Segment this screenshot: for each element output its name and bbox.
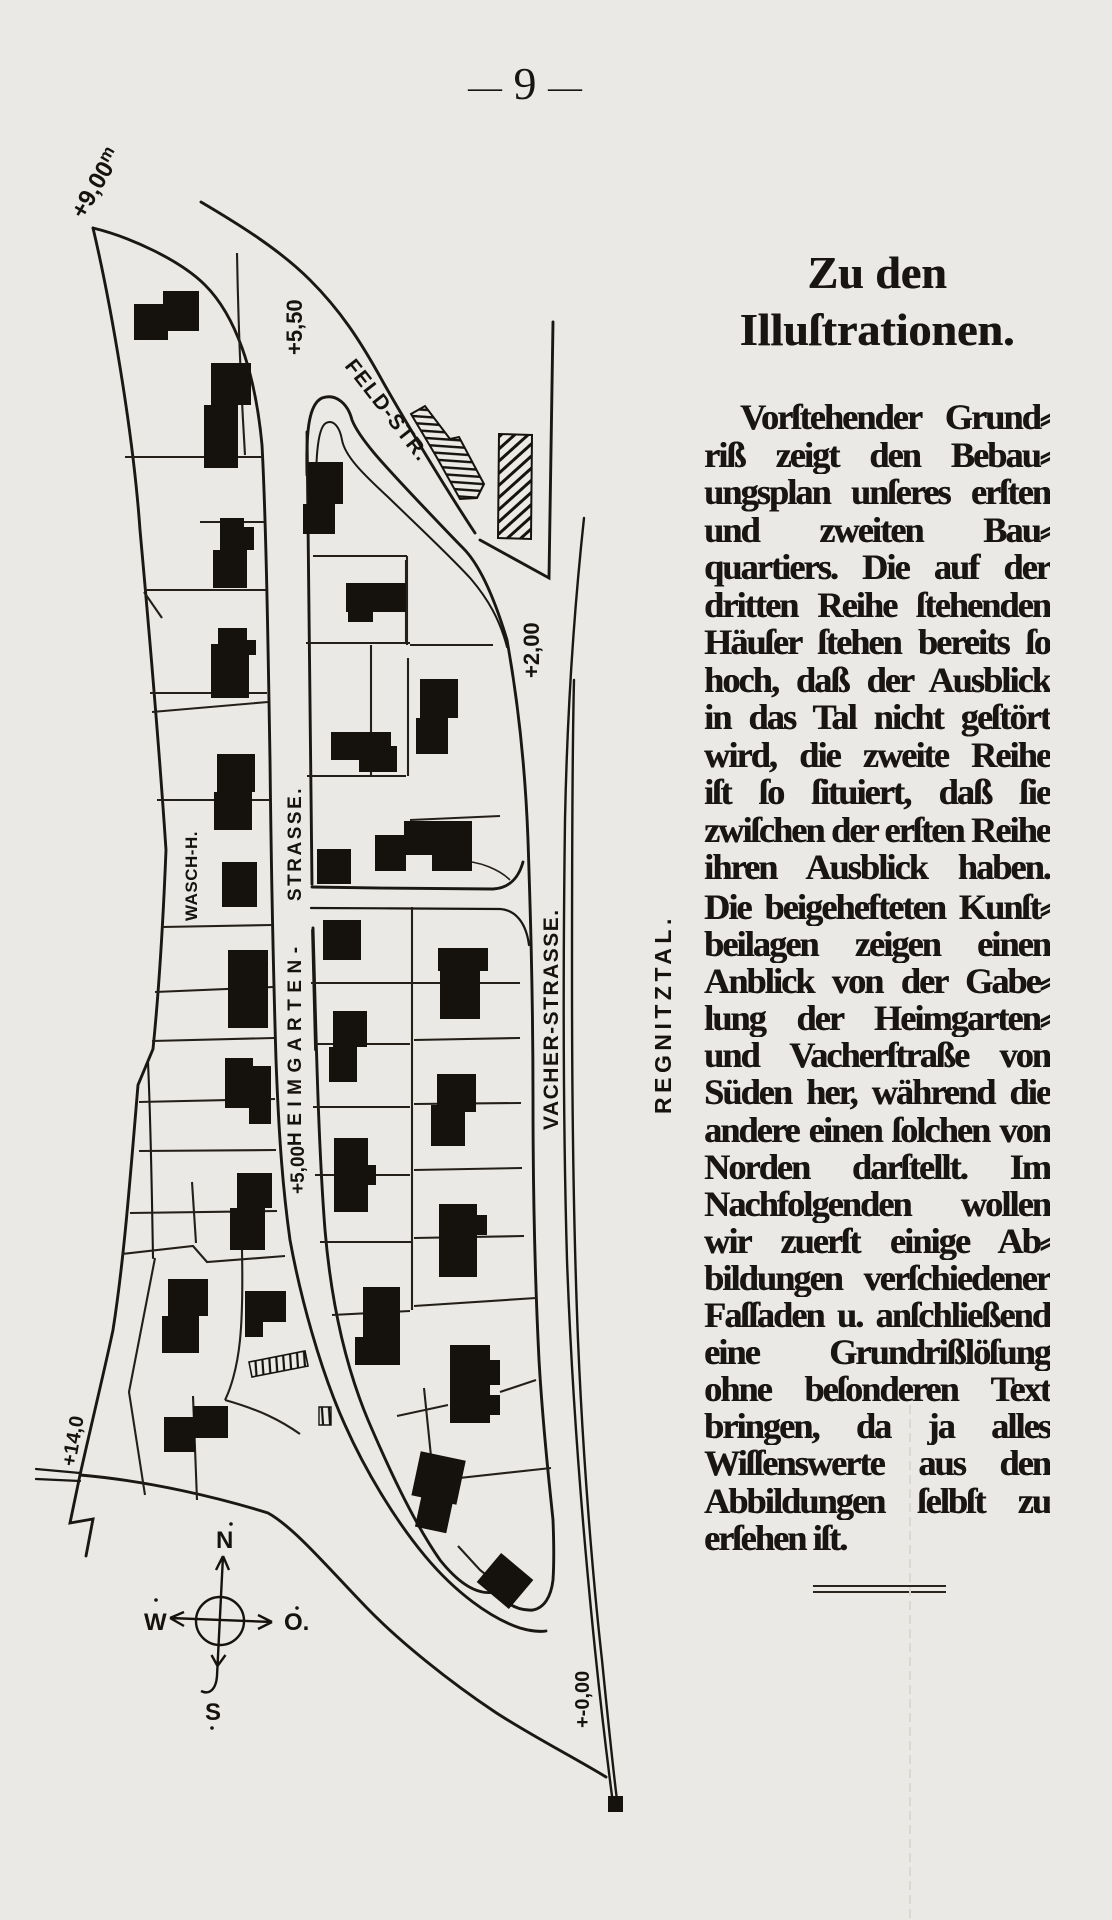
svg-text:+-0,00: +-0,00 bbox=[572, 1671, 594, 1728]
svg-text:+5,00: +5,00 bbox=[288, 1146, 309, 1194]
svg-text:+9,00m: +9,00m bbox=[64, 143, 127, 223]
svg-text:STRASSE.: STRASSE. bbox=[285, 786, 306, 901]
svg-text:WASCH-H.: WASCH-H. bbox=[182, 831, 201, 921]
svg-text:VACHER-STRASSE.: VACHER-STRASSE. bbox=[540, 908, 563, 1130]
svg-text:+2,00: +2,00 bbox=[519, 622, 544, 678]
svg-text:S: S bbox=[205, 1699, 221, 1726]
svg-text:+5,50: +5,50 bbox=[282, 299, 307, 355]
svg-text:O.: O. bbox=[284, 1609, 309, 1636]
svg-text:N: N bbox=[216, 1527, 233, 1554]
svg-text:W: W bbox=[144, 1609, 167, 1636]
svg-text:REGNITZTAL.: REGNITZTAL. bbox=[650, 914, 676, 1114]
svg-text:HEIMGARTEN-: HEIMGARTEN- bbox=[285, 940, 306, 1146]
